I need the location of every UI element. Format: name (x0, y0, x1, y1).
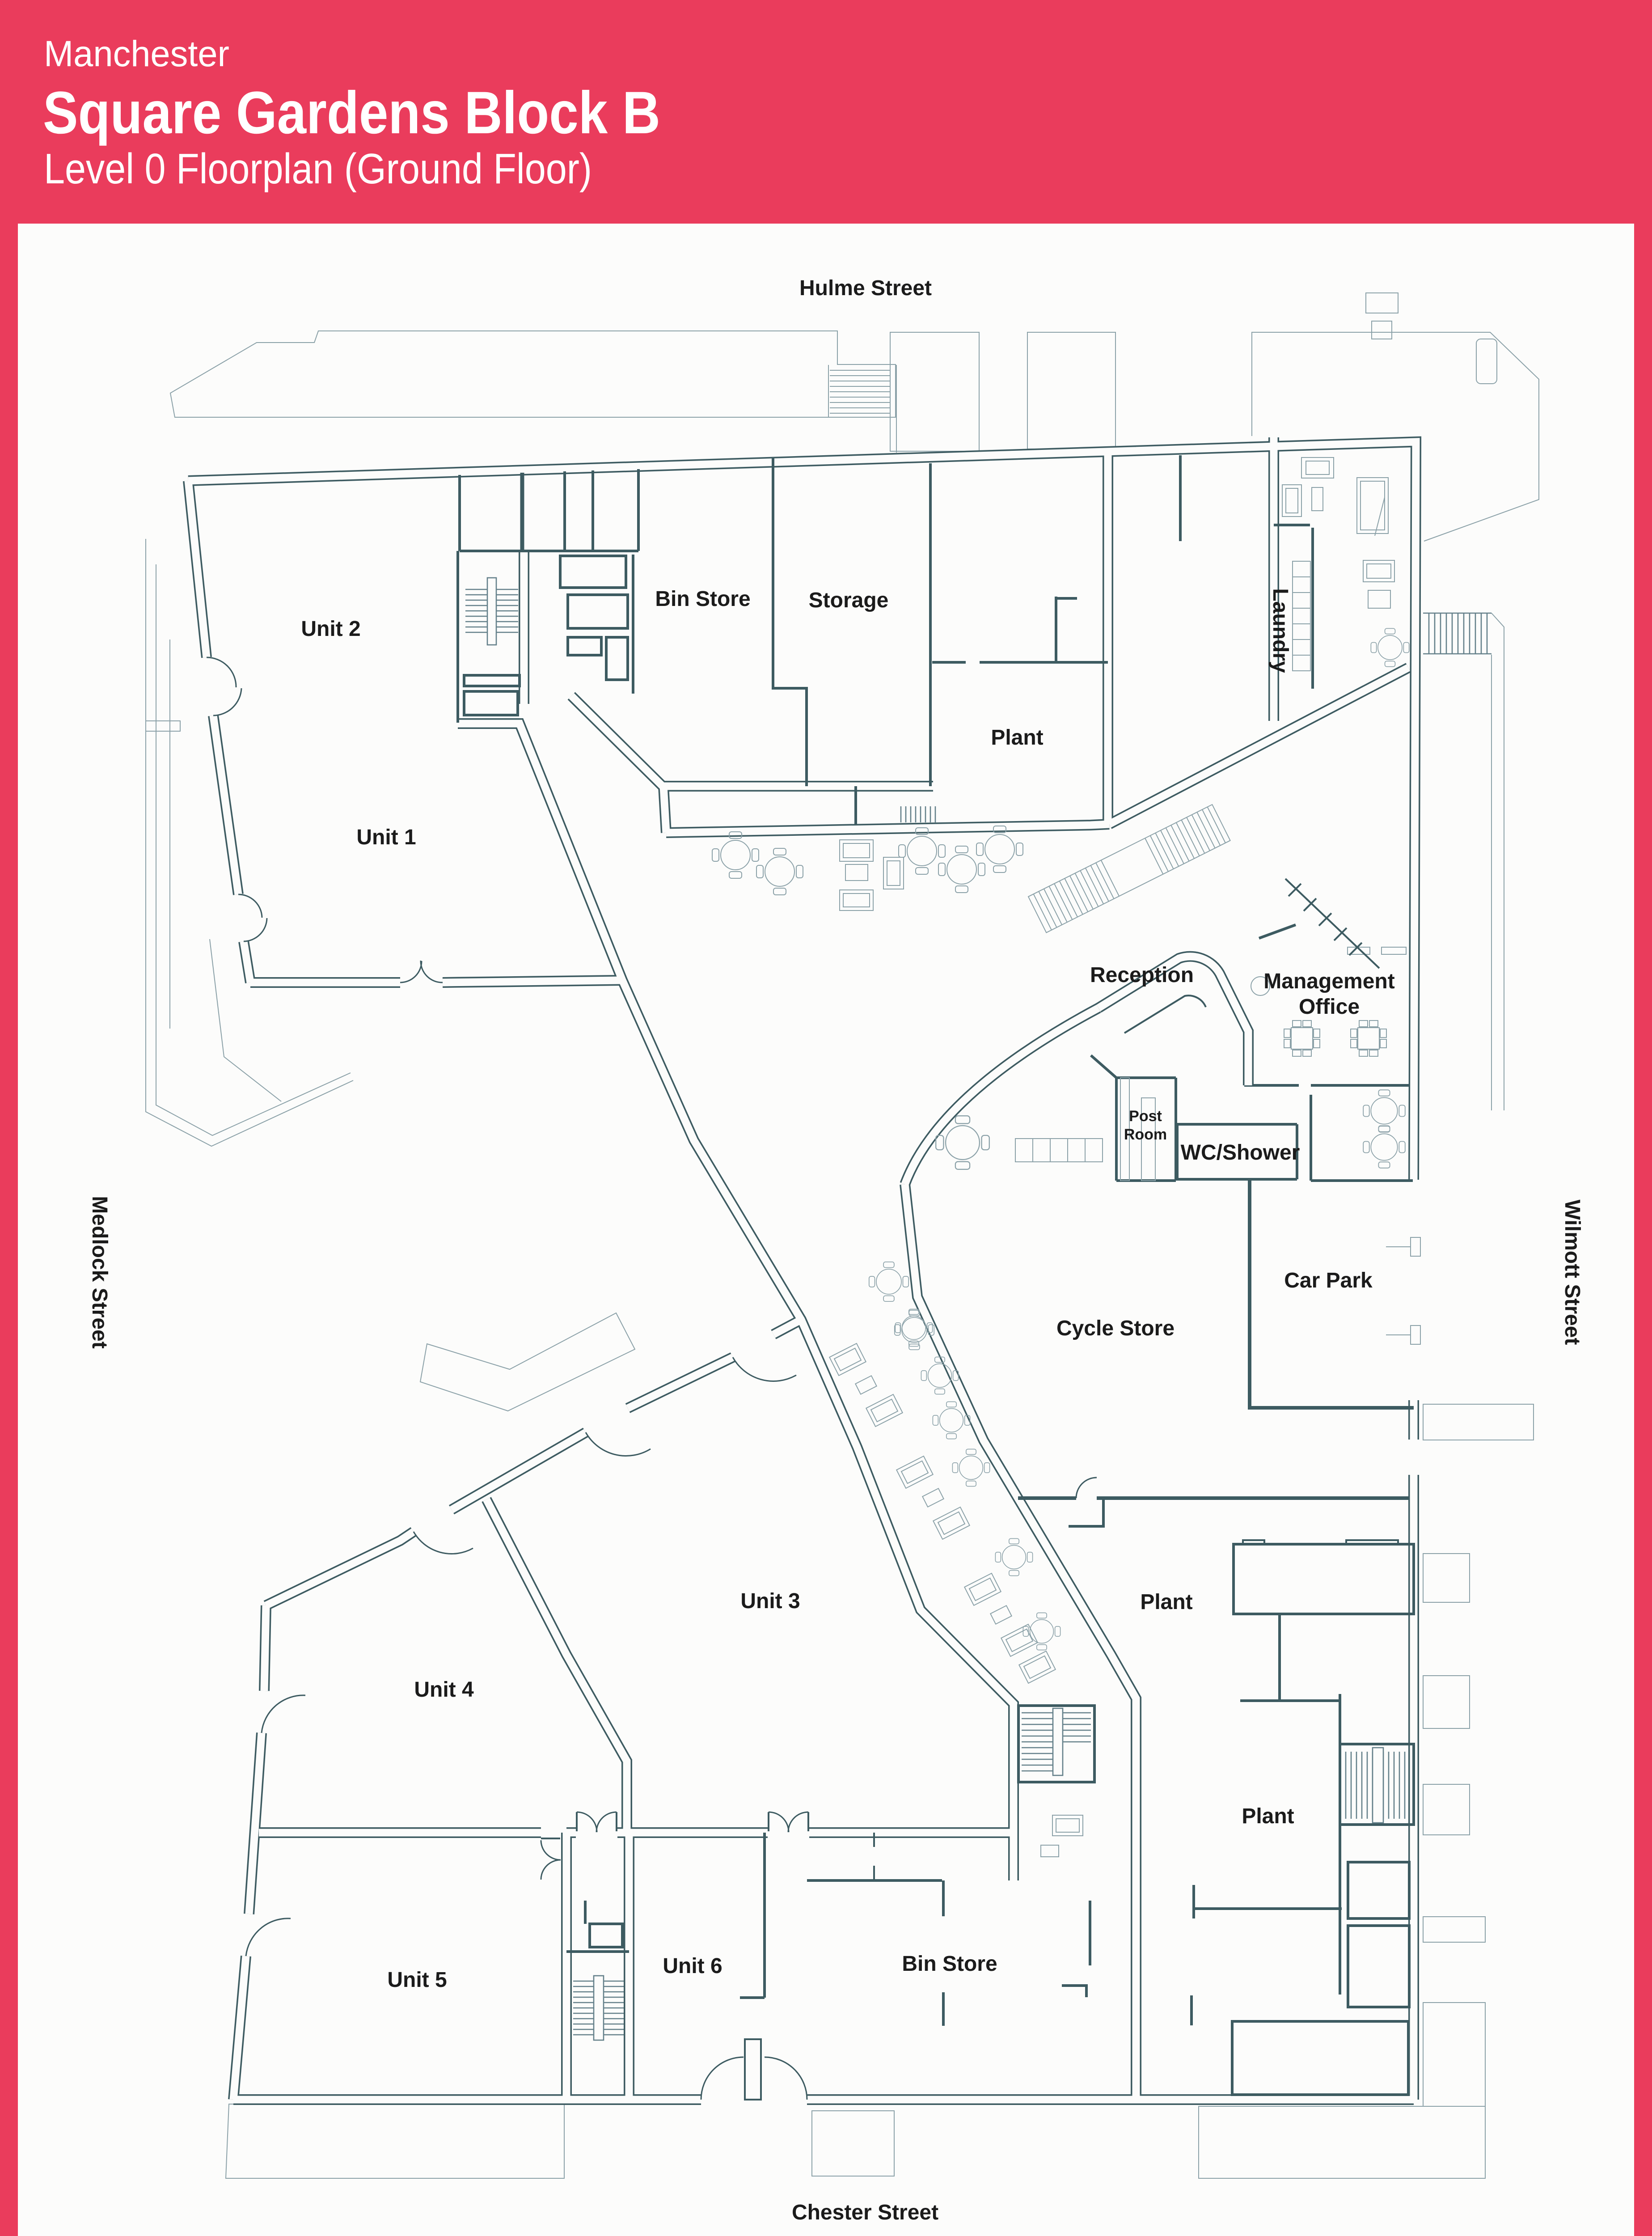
svg-text:Bin Store: Bin Store (655, 587, 750, 611)
svg-text:Bin Store: Bin Store (902, 1952, 997, 1976)
svg-text:Plant: Plant (1242, 1804, 1294, 1828)
svg-text:Room: Room (1124, 1126, 1167, 1143)
svg-text:Post: Post (1129, 1108, 1162, 1125)
svg-text:Chester Street: Chester Street (792, 2201, 938, 2224)
svg-text:Medlock Street: Medlock Street (88, 1196, 111, 1348)
svg-text:Laundry: Laundry (1268, 588, 1292, 673)
svg-text:Office: Office (1299, 995, 1360, 1019)
svg-text:Unit 1: Unit 1 (356, 826, 416, 849)
svg-text:Wilmott Street: Wilmott Street (1560, 1200, 1584, 1345)
svg-text:Reception: Reception (1090, 963, 1194, 987)
svg-text:Unit 2: Unit 2 (301, 617, 360, 641)
svg-text:Plant: Plant (1140, 1590, 1192, 1614)
svg-text:Car Park: Car Park (1284, 1269, 1373, 1292)
svg-text:Unit 5: Unit 5 (387, 1968, 447, 1992)
svg-text:WC/Shower: WC/Shower (1181, 1141, 1300, 1165)
svg-text:Level 0 Floorplan (Ground Floo: Level 0 Floorplan (Ground Floor) (44, 145, 592, 193)
svg-text:Management: Management (1263, 970, 1394, 993)
svg-text:Square Gardens Block B: Square Gardens Block B (43, 80, 660, 146)
svg-text:Plant: Plant (991, 726, 1043, 750)
svg-text:Unit 3: Unit 3 (740, 1589, 800, 1613)
svg-text:Unit 6: Unit 6 (663, 1954, 722, 1978)
svg-text:Hulme Street: Hulme Street (799, 276, 932, 300)
svg-text:Storage: Storage (809, 589, 889, 612)
svg-text:Unit 4: Unit 4 (414, 1678, 474, 1702)
svg-text:Manchester: Manchester (44, 34, 229, 74)
svg-text:Cycle Store: Cycle Store (1056, 1317, 1175, 1340)
